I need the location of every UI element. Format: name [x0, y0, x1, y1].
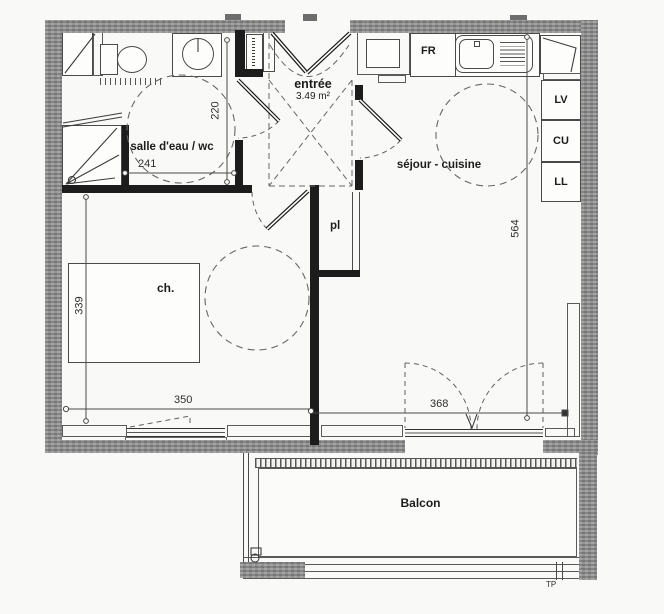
- turning-circles: [127, 75, 538, 350]
- balcony-label: Balcon: [393, 497, 448, 509]
- entry-label: entrée: [283, 78, 343, 91]
- fridge-label: FR: [421, 46, 436, 57]
- entry-dashed-outline: [269, 33, 352, 186]
- bedroom-label: ch.: [157, 282, 174, 294]
- dim-bathroom-depth: 220: [211, 97, 222, 125]
- door-leaves: [238, 33, 401, 229]
- dim-living-depth: 564: [511, 215, 522, 243]
- dim-bathroom-width: 241: [138, 159, 156, 170]
- living-kitchen-label: séjour - cuisine: [392, 160, 486, 172]
- entry-area-label: 3.49 m²: [283, 92, 343, 102]
- dim-living-width: 368: [430, 399, 448, 410]
- plan-ref-label: TP: [546, 581, 556, 589]
- dim-bedroom-width: 350: [174, 395, 192, 406]
- bathroom-label: salle d'eau / wc: [117, 142, 227, 154]
- floor-plan: LV CU LL: [0, 0, 664, 614]
- dim-bedroom-depth: 339: [75, 292, 86, 320]
- closet-label: pl: [330, 221, 340, 233]
- fixture-details: [63, 34, 576, 562]
